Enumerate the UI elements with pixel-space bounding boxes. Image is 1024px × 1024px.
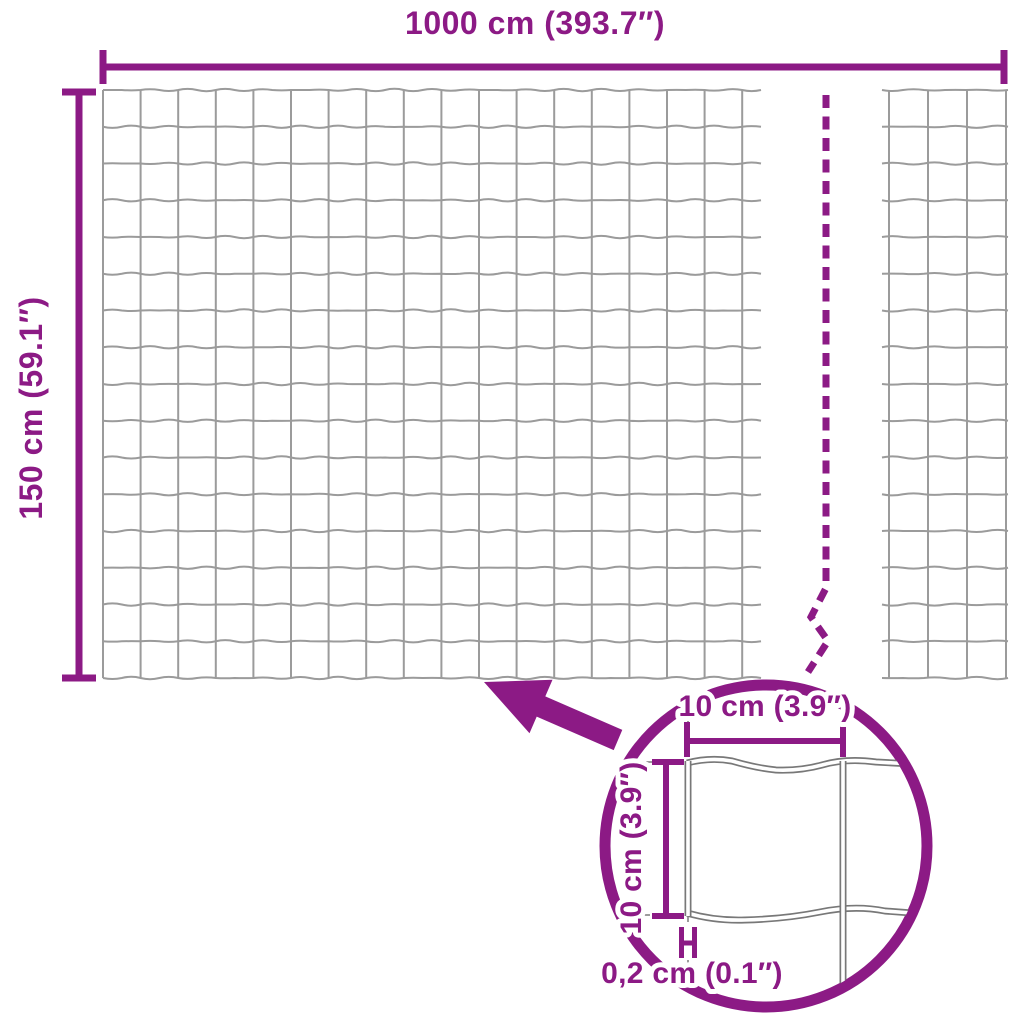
- wire-mesh-left-panel: [103, 89, 761, 679]
- wire-thickness-gauge-lines: [682, 927, 695, 958]
- cell-height-dimension: [652, 762, 684, 916]
- cell-width-dimension-line: [687, 722, 843, 757]
- mesh-horizontal-wires: [103, 89, 761, 679]
- cell-height-label: 10 cm (3.9″): [615, 761, 648, 934]
- break-dashed-line: [808, 95, 828, 672]
- diagram-canvas: 1000 cm (393.7″) 150 cm (59.1″): [0, 0, 1024, 1024]
- height-dimension-label: 150 cm (59.1″): [13, 296, 49, 519]
- zoom-detail-circle: 10 cm (3.9″) 10 cm (3.9″) 0,2 cm (0.1″): [601, 685, 927, 1007]
- zoom-arrow-icon: [484, 680, 622, 750]
- fence-dimension-diagram: 1000 cm (393.7″) 150 cm (59.1″): [0, 0, 1024, 1024]
- wire-thickness-label: 0,2 cm (0.1″): [601, 957, 783, 990]
- cell-height-dimension-line: [652, 762, 684, 916]
- cell-width-dimension: [687, 722, 843, 757]
- cell-width-label: 10 cm (3.9″): [678, 690, 851, 723]
- extension-dashes: [644, 694, 843, 976]
- width-dimension-line: [103, 50, 1004, 84]
- wire-mesh-right-panel: [882, 89, 1008, 679]
- mesh-horizontal-wires: [882, 89, 1008, 679]
- height-dimension: 150 cm (59.1″): [13, 92, 96, 678]
- width-dimension: 1000 cm (393.7″): [103, 5, 1004, 84]
- width-dimension-label: 1000 cm (393.7″): [405, 5, 665, 41]
- wire-thickness-gauge: [682, 927, 695, 958]
- height-dimension-line: [62, 92, 96, 678]
